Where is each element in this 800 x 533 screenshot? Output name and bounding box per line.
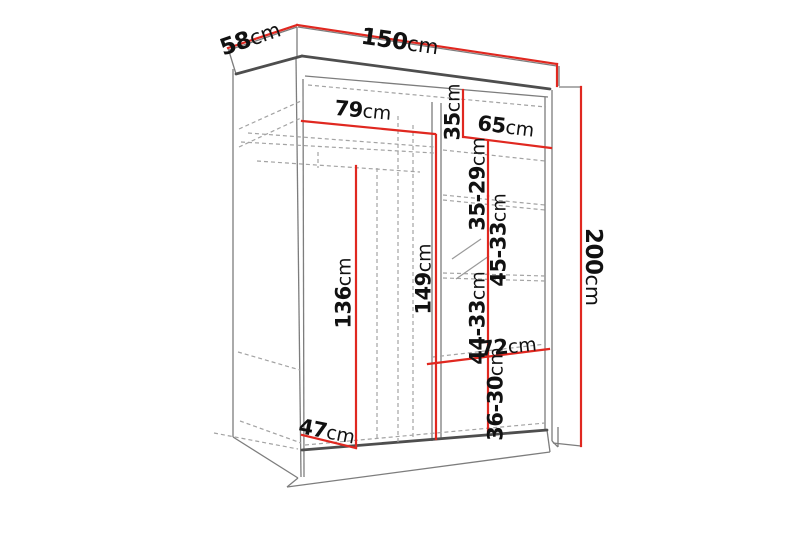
plinth-bottom-edge [287, 452, 550, 487]
plinth-right-edge [547, 430, 550, 452]
dim-label-36-30cm: 36-30cm [483, 347, 507, 440]
wardrobe-dimension-diagram: 58cm 150cm 200cm 79cm 35cm 65cm 35-29cm … [0, 0, 800, 533]
dim-label-58cm: 58cm [217, 17, 285, 62]
dim-label-45-33cm: 45-33cm [486, 193, 510, 286]
dim-label-79cm: 79cm [334, 96, 393, 125]
dim-label-47cm: 47cm [297, 414, 358, 448]
roof-front-left-edge [236, 56, 302, 74]
left-top-shelf-back-edge [248, 133, 434, 147]
right-shelf-65-underside [443, 150, 545, 161]
dim-label-150cm: 150cm [359, 24, 440, 61]
left-panel-depth-line-top [239, 101, 301, 129]
dim-label-35cm: 35cm [440, 83, 464, 140]
dim-label-149cm: 149cm [411, 243, 435, 314]
dim-label-65cm: 65cm [476, 111, 536, 142]
hanging-rail-line [257, 161, 420, 172]
left-top-shelf-front-edge [241, 142, 434, 153]
wardrobe-outline [228, 27, 581, 487]
dim-label-136cm: 136cm [331, 257, 355, 328]
diagram-canvas: 58cm 150cm 200cm 79cm 35cm 65cm 35-29cm … [0, 0, 800, 533]
dim-label-200cm: 200cm [580, 228, 606, 306]
dimension-lines [228, 25, 581, 448]
floor-back-edge-left [214, 433, 298, 449]
left-panel-depth-line-3 [238, 352, 300, 370]
roof-front-right-edge [302, 56, 550, 89]
dim-label-35-29cm: 35-29cm [465, 137, 489, 230]
mirror-stroke-1 [452, 239, 481, 259]
dim-line-79cm [302, 121, 435, 134]
interior-ceiling-front-edge [305, 76, 548, 97]
dimension-labels: 58cm 150cm 200cm 79cm 35cm 65cm 35-29cm … [217, 17, 606, 449]
